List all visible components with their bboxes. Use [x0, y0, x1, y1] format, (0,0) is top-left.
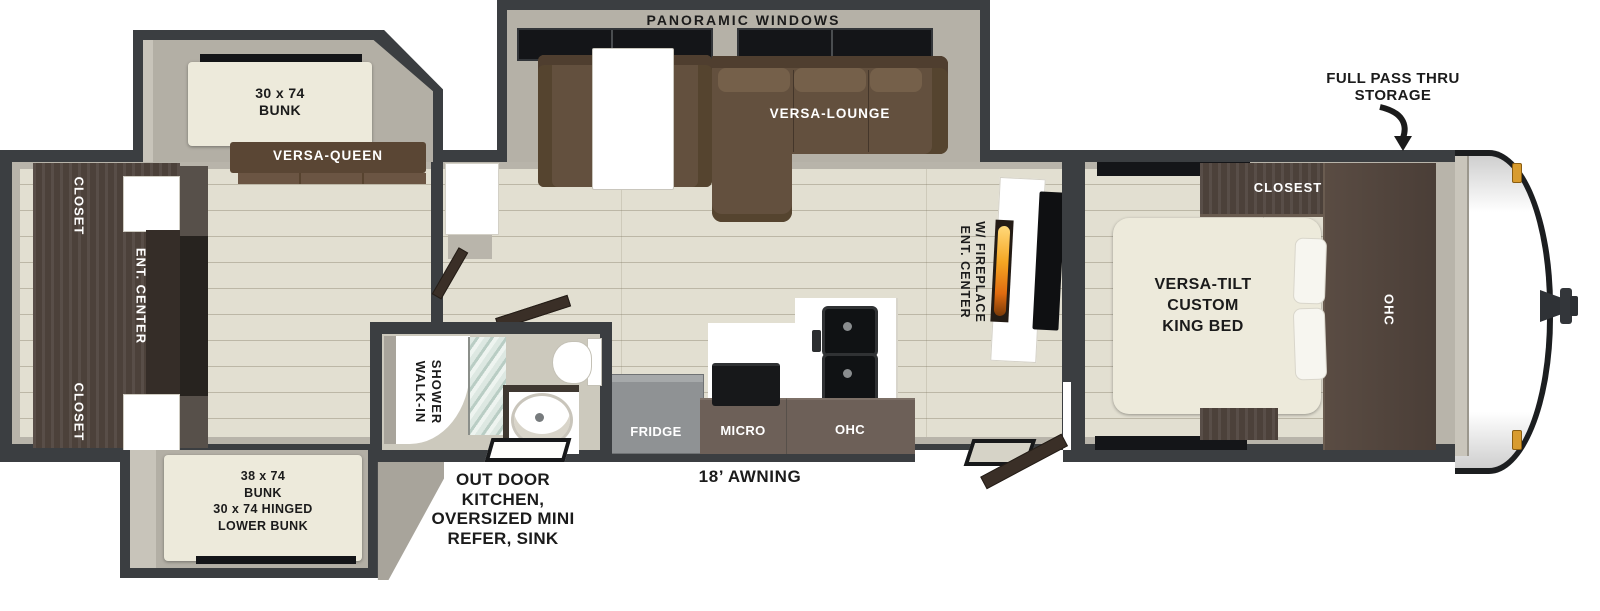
hall-cabinet: [445, 163, 499, 235]
rear-ent-center-slab: [146, 230, 180, 394]
shower-accordion-door: [468, 337, 506, 435]
wall-face: [1434, 169, 1457, 437]
sink-faucet: [812, 330, 821, 352]
walk-in-shower-label: WALK-IN SHOWER: [412, 360, 444, 425]
pillow: [1293, 237, 1327, 304]
ent-center-fireplace-label: ENT. CENTER W/ FIREPLACE: [957, 221, 987, 323]
bed-nightstand: [1200, 408, 1278, 440]
rear-pass-panel-top: [123, 176, 180, 232]
lounge-chaise: [712, 152, 792, 222]
rear-pass-panel-bottom: [123, 394, 180, 452]
wall-face: [12, 162, 20, 444]
front-cap: [1455, 150, 1553, 474]
upper-bunk-label: 30 x 74 BUNK: [188, 85, 372, 118]
versa-lounge-label: VERSA-LOUNGE: [740, 106, 920, 122]
storage-arrow-icon: [1374, 104, 1418, 152]
dinette-table: [592, 48, 674, 190]
versa-queen-label: VERSA-QUEEN: [230, 148, 426, 164]
kitchen-ohc-label: OHC: [786, 422, 914, 437]
kitchen-sink-basin: [822, 306, 878, 357]
sink-drain: [843, 322, 852, 331]
pillow: [1293, 307, 1327, 380]
kitchen-sink-basin: [822, 353, 878, 404]
front-cap-seam: [1455, 156, 1469, 456]
bath-faucet: [535, 413, 544, 422]
sectional-cushion: [794, 68, 866, 92]
marker-light-top: [1512, 163, 1522, 183]
sink-drain: [843, 369, 852, 378]
marker-light-bottom: [1512, 430, 1522, 450]
rear-tv: [180, 166, 208, 448]
fridge-label: FRIDGE: [610, 424, 702, 439]
bath-mat: [485, 438, 572, 462]
micro-label: MICRO: [700, 423, 786, 438]
fridge: [610, 374, 704, 454]
versa-queen-cushions: [238, 173, 426, 184]
awning-label: 18’ AWNING: [670, 467, 830, 487]
bedroom-ohc: [1323, 163, 1436, 450]
toilet-bowl: [552, 341, 592, 384]
closet-bottom-label: CLOSET: [72, 383, 87, 442]
rv-floorplan: CLOSET ENT. CENTER CLOSET 30 x 74 BUNK V…: [0, 0, 1600, 611]
panoramic-windows-label: PANORAMIC WINDOWS: [507, 12, 980, 29]
sectional-cushion: [870, 68, 922, 92]
outdoor-kitchen-label: OUT DOOR KITCHEN, OVERSIZED MINI REFER, …: [413, 470, 593, 548]
bedroom-ohc-label: OHC: [1382, 294, 1397, 326]
lower-bunk-label: 38 x 74 BUNK 30 x 74 HINGED LOWER BUNK: [164, 468, 362, 534]
hitch-tip: [1570, 296, 1578, 316]
full-pass-thru-storage-label: FULL PASS THRU STORAGE: [1318, 70, 1468, 104]
sectional-cushion: [718, 68, 790, 92]
rear-ent-center-label: ENT. CENTER: [134, 248, 149, 344]
microwave: [712, 363, 780, 406]
hitch-coupler: [1540, 290, 1562, 322]
lower-bunk-trim: [196, 556, 356, 564]
closet-top-label: CLOSET: [72, 177, 87, 236]
king-bed-label: VERSA-TILT CUSTOM KING BED: [1113, 274, 1293, 337]
